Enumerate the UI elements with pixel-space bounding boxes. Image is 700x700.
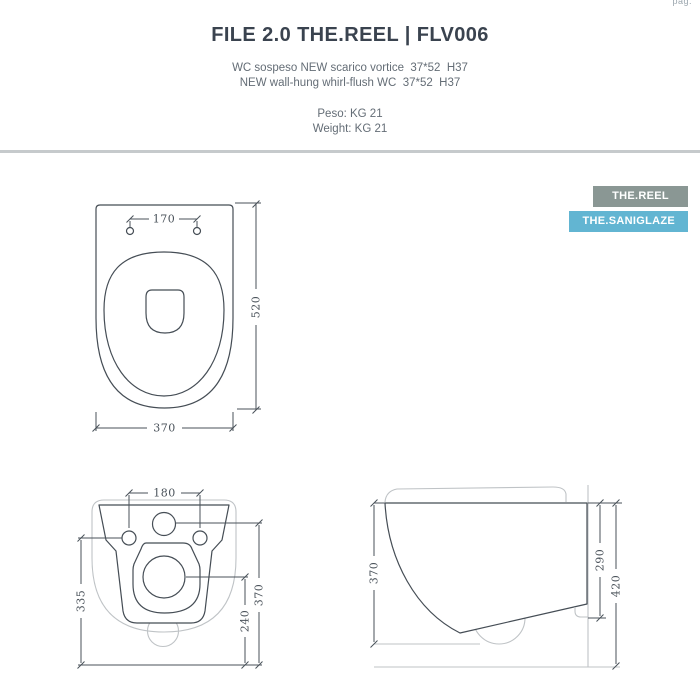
front-view-drawing: 180 335 370 240: [75, 487, 266, 669]
dim-label-520: 520: [250, 296, 263, 319]
dim-label-180: 180: [153, 487, 176, 500]
side-view-body-outline: [385, 503, 587, 633]
front-view-mount-hole-right: [193, 531, 207, 545]
side-view-lid-outline: [385, 487, 566, 502]
side-view-outlet-detail: [575, 607, 588, 617]
front-view-inlet-hole: [153, 513, 176, 536]
dim-label-290: 290: [594, 549, 607, 572]
dim-label-370-side-view: 370: [368, 562, 381, 585]
dim-label-170: 170: [153, 213, 176, 226]
dim-label-420: 420: [610, 575, 623, 598]
front-view-drain-hole: [143, 556, 185, 598]
top-view-body-outline: [96, 205, 233, 408]
technical-drawings: 170 520 370 180 335 370 240 370 290 420: [0, 0, 700, 700]
side-view-drawing: 370 290 420: [368, 485, 623, 670]
dim-label-240: 240: [239, 610, 252, 633]
dim-label-370-front-view: 370: [253, 584, 266, 607]
front-view-mount-hole-left: [122, 531, 136, 545]
top-view-drawing: 170 520 370: [93, 201, 263, 435]
dim-label-335: 335: [75, 590, 88, 613]
dim-label-370-top-view: 370: [153, 422, 176, 435]
